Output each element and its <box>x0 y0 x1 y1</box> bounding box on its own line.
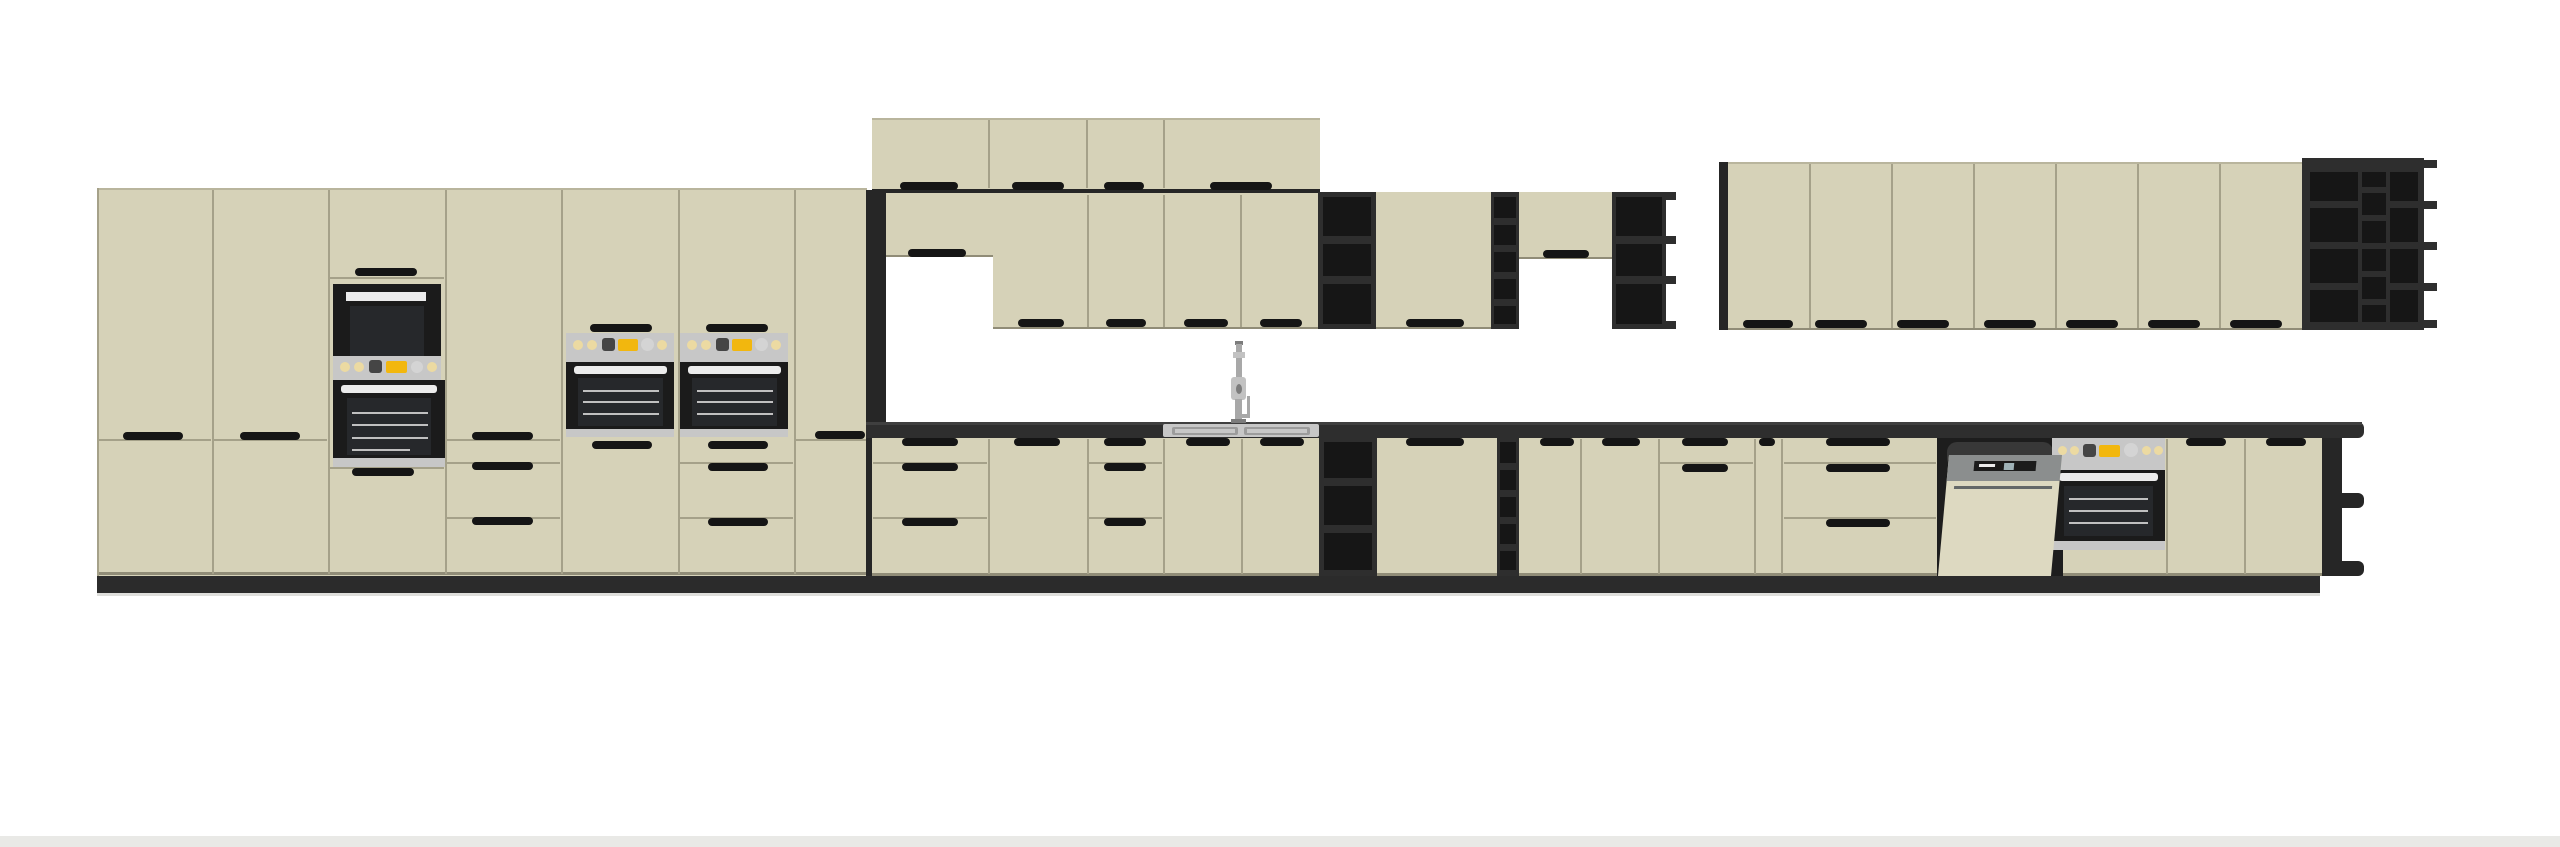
door-handle <box>352 468 414 476</box>
oven-mid-right-bar <box>688 366 781 374</box>
oven-right-bottom-trim <box>2052 541 2165 550</box>
open-shelf-board <box>2362 187 2386 193</box>
oven-rack <box>583 401 659 403</box>
oven-knob <box>687 340 697 350</box>
door-handle <box>355 268 417 276</box>
door-handle <box>1540 438 1574 446</box>
panel-seam <box>1163 439 1165 574</box>
oven-knob <box>587 340 597 350</box>
oven-left-bottom-trim <box>333 458 445 467</box>
oven-rack <box>352 449 410 451</box>
microwave-knob <box>427 362 437 372</box>
panel-seam <box>794 190 796 574</box>
door-handle <box>902 438 958 446</box>
door-handle <box>1186 438 1230 446</box>
panel-seam <box>2244 439 2246 574</box>
panel-seam <box>328 190 330 574</box>
oven-rack <box>2069 522 2148 524</box>
open-shelf-board <box>1500 490 1516 497</box>
shelf-fin <box>2424 201 2437 209</box>
door-handle <box>472 517 533 525</box>
door-handle <box>2266 438 2306 446</box>
door-handle <box>708 441 768 449</box>
oven-rack <box>583 413 659 415</box>
microwave-knob-steel <box>411 361 423 373</box>
oven-display <box>2099 445 2120 457</box>
door-handle <box>902 518 958 526</box>
upper-row2-cabinets[interactable] <box>993 193 1318 329</box>
faucet-base <box>1231 419 1246 423</box>
door-handle <box>1406 319 1464 327</box>
open-shelf-board <box>2362 271 2386 277</box>
oven-knob <box>2154 446 2163 455</box>
floor-line <box>0 836 2560 847</box>
oven-rack <box>2069 510 2148 512</box>
door-handle <box>1018 319 1064 327</box>
oven-knob-dark <box>602 338 615 351</box>
oven-knob <box>657 340 667 350</box>
toe-kick-shadow <box>97 593 2320 596</box>
oven-rack <box>2069 498 2148 500</box>
open-shelf-board <box>1494 245 1516 252</box>
door-handle <box>708 518 768 526</box>
open-shelf-upper-2-cell <box>1616 197 1662 324</box>
panel-seam <box>1086 120 1088 188</box>
upper-right-run-bottom <box>1728 328 2302 330</box>
door-handle <box>1012 182 1064 190</box>
panel-seam <box>2166 439 2168 574</box>
door-handle <box>1984 320 2036 328</box>
door-handle <box>1104 518 1146 526</box>
open-shelf-board <box>2362 215 2386 221</box>
microwave-window <box>350 306 424 356</box>
open-shelf-board <box>1324 525 1372 533</box>
oven-rack <box>352 424 428 426</box>
door-handle <box>1406 438 1464 446</box>
open-shelf-board <box>2362 243 2386 249</box>
door-handle <box>1743 320 1793 328</box>
panel-seam <box>212 190 214 574</box>
upper-right-run-edge <box>1719 162 1728 330</box>
oven-knob <box>2142 446 2151 455</box>
open-shelf-board <box>2390 201 2418 208</box>
panel-seam <box>329 277 444 279</box>
upper-door-wide-bottom <box>1376 327 1491 329</box>
oven-knob-steel <box>2124 443 2138 457</box>
oven-knob-steel <box>641 338 654 351</box>
panel-seam <box>1809 164 1811 328</box>
faucet-collar <box>1233 352 1245 358</box>
oven-rack <box>352 437 428 439</box>
oven-rack <box>697 390 773 392</box>
panel-seam <box>1087 439 1089 574</box>
open-shelf-board <box>2362 299 2386 305</box>
panel-seam <box>1891 164 1893 328</box>
door-handle <box>1014 438 1060 446</box>
upper-right-run-top-edge <box>1728 162 2302 164</box>
sink-basin-inner <box>1175 429 1235 433</box>
kitchen-elevation-render <box>0 0 2560 847</box>
door-handle <box>900 182 958 190</box>
door-handle <box>1759 438 1775 446</box>
open-shelf-board <box>1494 218 1516 225</box>
open-shelf-board <box>1323 236 1371 244</box>
oven-left-window <box>347 398 431 455</box>
door-handle <box>1602 438 1640 446</box>
oven-knob <box>2058 446 2067 455</box>
upper-short-door-2[interactable] <box>1519 192 1612 259</box>
open-shelf-board <box>2390 242 2418 249</box>
door-handle <box>472 432 533 440</box>
oven-rack <box>583 390 659 392</box>
door-handle <box>1897 320 1949 328</box>
oven-rack <box>697 413 773 415</box>
door-handle <box>240 432 300 440</box>
oven-knob <box>701 340 711 350</box>
open-shelf-board <box>2310 283 2358 290</box>
panel-seam <box>1240 195 1242 327</box>
panel-seam <box>1754 439 1756 574</box>
dishwasher-display-text <box>1979 464 1995 467</box>
upper-row2-bottom <box>993 327 1318 329</box>
base-run-left[interactable] <box>872 437 1319 576</box>
panel-seam <box>2219 164 2221 328</box>
door-handle <box>902 463 958 471</box>
open-shelf-board <box>1616 276 1662 284</box>
open-shelf-board <box>2390 283 2418 290</box>
door-handle <box>123 432 183 440</box>
door-handle <box>1260 438 1304 446</box>
oven-display <box>618 339 638 351</box>
panel-seam <box>795 439 866 441</box>
shelf-fin <box>2424 320 2437 328</box>
oven-knob-steel <box>755 338 768 351</box>
shelf-fin <box>1666 192 1676 200</box>
door-handle <box>815 431 865 439</box>
door-handle <box>590 324 652 332</box>
panel-seam <box>561 190 563 574</box>
upper-door-wide[interactable] <box>1376 192 1491 329</box>
open-shelf-board <box>1500 463 1516 470</box>
corner-end-panel <box>866 190 886 437</box>
open-shelf-board <box>1616 236 1662 244</box>
panel-seam <box>1658 439 1660 574</box>
panel-seam <box>2055 164 2057 328</box>
open-shelf-board <box>1494 299 1516 306</box>
dishwasher-handle-groove <box>1954 486 2052 489</box>
open-shelf-upper-1-cell <box>1323 197 1371 324</box>
faucet-spout <box>1241 414 1250 418</box>
upper-top-row[interactable] <box>872 118 1320 190</box>
door-handle <box>592 441 652 449</box>
shelf-fin <box>1666 276 1676 284</box>
open-shelf-base-1-cell <box>1324 442 1372 570</box>
door-handle <box>1826 464 1890 472</box>
open-shelf-board <box>1500 544 1516 551</box>
oven-mid-left-bottom <box>566 429 674 437</box>
open-shelf-board <box>1323 276 1371 284</box>
door-handle <box>2066 320 2118 328</box>
end-shelf-fin <box>2342 493 2364 508</box>
shelf-fin <box>2424 283 2437 291</box>
panel-seam <box>1163 195 1165 327</box>
microwave-knob <box>354 362 364 372</box>
open-shelf-board <box>2310 242 2358 249</box>
toe-kick <box>97 576 2320 593</box>
panel-seam <box>1241 439 1243 574</box>
microwave-knob-dark <box>369 360 382 373</box>
door-handle <box>2186 438 2226 446</box>
panel-seam <box>1973 164 1975 328</box>
panel-seam <box>988 120 990 188</box>
door-handle <box>1104 182 1144 190</box>
oven-rack <box>697 401 773 403</box>
door-handle <box>1106 319 1146 327</box>
door-handle <box>708 463 768 471</box>
shelf-fin <box>1666 321 1676 329</box>
open-shelf-board <box>1324 478 1372 486</box>
upper-right-run[interactable] <box>1728 162 2302 330</box>
oven-knob-dark <box>2083 444 2096 457</box>
door-handle <box>1815 320 1867 328</box>
faucet-spout-pipe <box>1247 396 1250 416</box>
door-handle <box>1260 319 1302 327</box>
oven-knob <box>573 340 583 350</box>
oven-knob-dark <box>716 338 729 351</box>
panel-seam <box>988 439 990 574</box>
end-shelf-panel <box>2322 437 2342 576</box>
door-handle <box>2230 320 2282 328</box>
door-handle <box>1682 464 1728 472</box>
panel-seam <box>1087 195 1089 327</box>
door-handle <box>1543 250 1589 258</box>
oven-rack <box>352 412 428 414</box>
shelf-fin <box>2424 242 2437 250</box>
door-handle <box>1104 463 1146 471</box>
upper-short-cabinet[interactable] <box>886 193 993 257</box>
upper-top-row-edge <box>872 118 1320 120</box>
oven-mid-right-bottom <box>680 429 788 437</box>
faucet-body-detail <box>1236 384 1242 394</box>
shelf-fin <box>2424 160 2437 168</box>
panel-seam <box>1580 439 1582 574</box>
door-handle <box>1210 182 1272 190</box>
oven-knob <box>2070 446 2079 455</box>
door-handle <box>1104 438 1146 446</box>
sink-basin-inner <box>1247 429 1307 433</box>
faucet-spring <box>1236 344 1242 380</box>
panel-seam <box>1163 120 1165 188</box>
door-handle <box>908 249 966 257</box>
microwave-knob <box>340 362 350 372</box>
open-shelf-board <box>1494 272 1516 279</box>
open-shelf-board <box>1500 517 1516 524</box>
countertop-highlight <box>866 422 2362 425</box>
oven-right-handle-bar <box>2059 473 2158 481</box>
door-handle <box>706 324 768 332</box>
oven-left-handle-bar <box>341 385 437 393</box>
door-handle <box>1826 438 1890 446</box>
door-handle <box>1184 319 1228 327</box>
panel-seam <box>1781 439 1783 574</box>
oven-knob <box>771 340 781 350</box>
door-handle <box>472 462 533 470</box>
door-handle <box>2148 320 2200 328</box>
open-shelf-board <box>2310 201 2358 208</box>
door-handle <box>1682 438 1728 446</box>
panel-seam <box>97 188 99 576</box>
base-run-mid-1[interactable] <box>1377 437 1497 576</box>
door-handle <box>1826 519 1890 527</box>
panel-seam <box>2137 164 2139 328</box>
oven-display <box>732 339 752 351</box>
oven-mid-left-bar <box>574 366 667 374</box>
end-shelf-fin <box>2342 561 2364 576</box>
dishwasher-display-icon <box>2004 463 2015 470</box>
microwave-top-bar <box>346 292 426 301</box>
shelf-fin <box>1666 236 1676 244</box>
microwave-display <box>386 361 407 373</box>
dishwasher-door[interactable] <box>1938 455 2062 576</box>
